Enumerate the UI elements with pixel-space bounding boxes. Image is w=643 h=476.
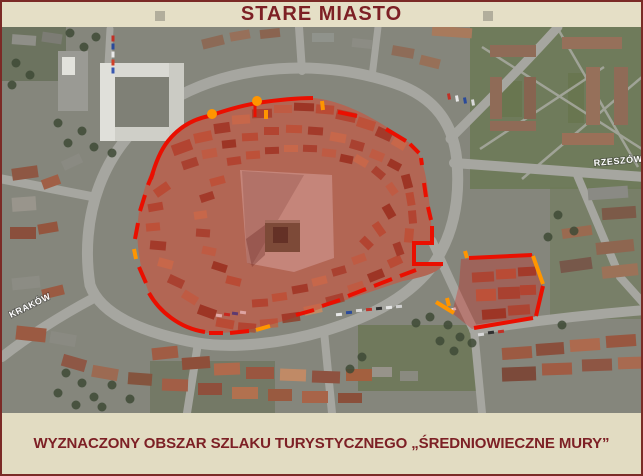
square-marker-right bbox=[483, 11, 493, 21]
aerial-map: KRAKÓW RZESZÓW bbox=[2, 27, 641, 413]
header-bar: STARE MIASTO bbox=[2, 2, 641, 27]
gate-dot-west bbox=[207, 109, 217, 119]
footer-bar: WYZNACZONY OBSZAR SZLAKU TURYSTYCZNEGO „… bbox=[2, 413, 641, 474]
infographic-frame: STARE MIASTO bbox=[0, 0, 643, 476]
page-title: STARE MIASTO bbox=[241, 2, 402, 27]
footer-caption: WYZNACZONY OBSZAR SZLAKU TURYSTYCZNEGO „… bbox=[34, 435, 610, 452]
square-marker-left bbox=[155, 11, 165, 21]
gate-dot-east bbox=[252, 96, 262, 106]
aerial-map-image: KRAKÓW RZESZÓW bbox=[2, 27, 641, 413]
